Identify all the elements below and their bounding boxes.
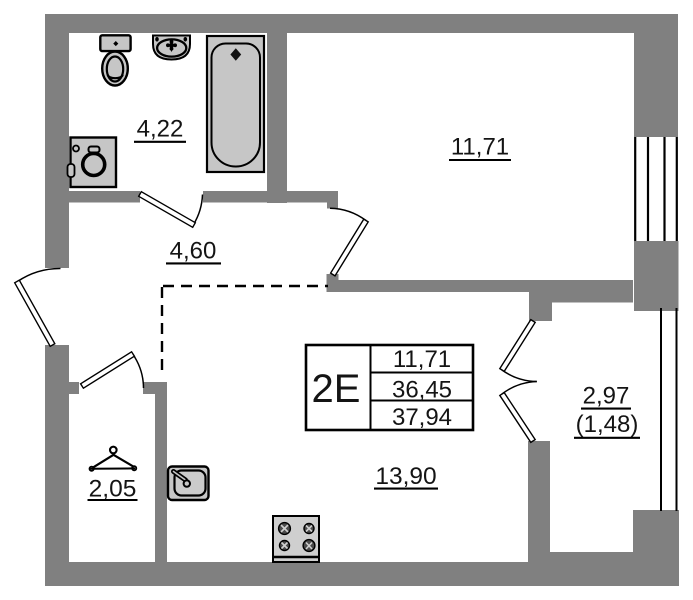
svg-text:36,45: 36,45 — [392, 377, 452, 404]
svg-text:37,94: 37,94 — [392, 404, 452, 431]
svg-text:(1,48): (1,48) — [576, 411, 639, 438]
svg-text:2E: 2E — [312, 367, 361, 411]
svg-text:2,97: 2,97 — [583, 383, 630, 410]
svg-text:4,60: 4,60 — [170, 238, 217, 265]
svg-text:13,90: 13,90 — [375, 463, 436, 490]
svg-text:4,22: 4,22 — [137, 116, 184, 143]
svg-text:11,71: 11,71 — [451, 134, 509, 161]
svg-text:2,05: 2,05 — [89, 476, 137, 503]
svg-text:11,71: 11,71 — [393, 346, 451, 373]
